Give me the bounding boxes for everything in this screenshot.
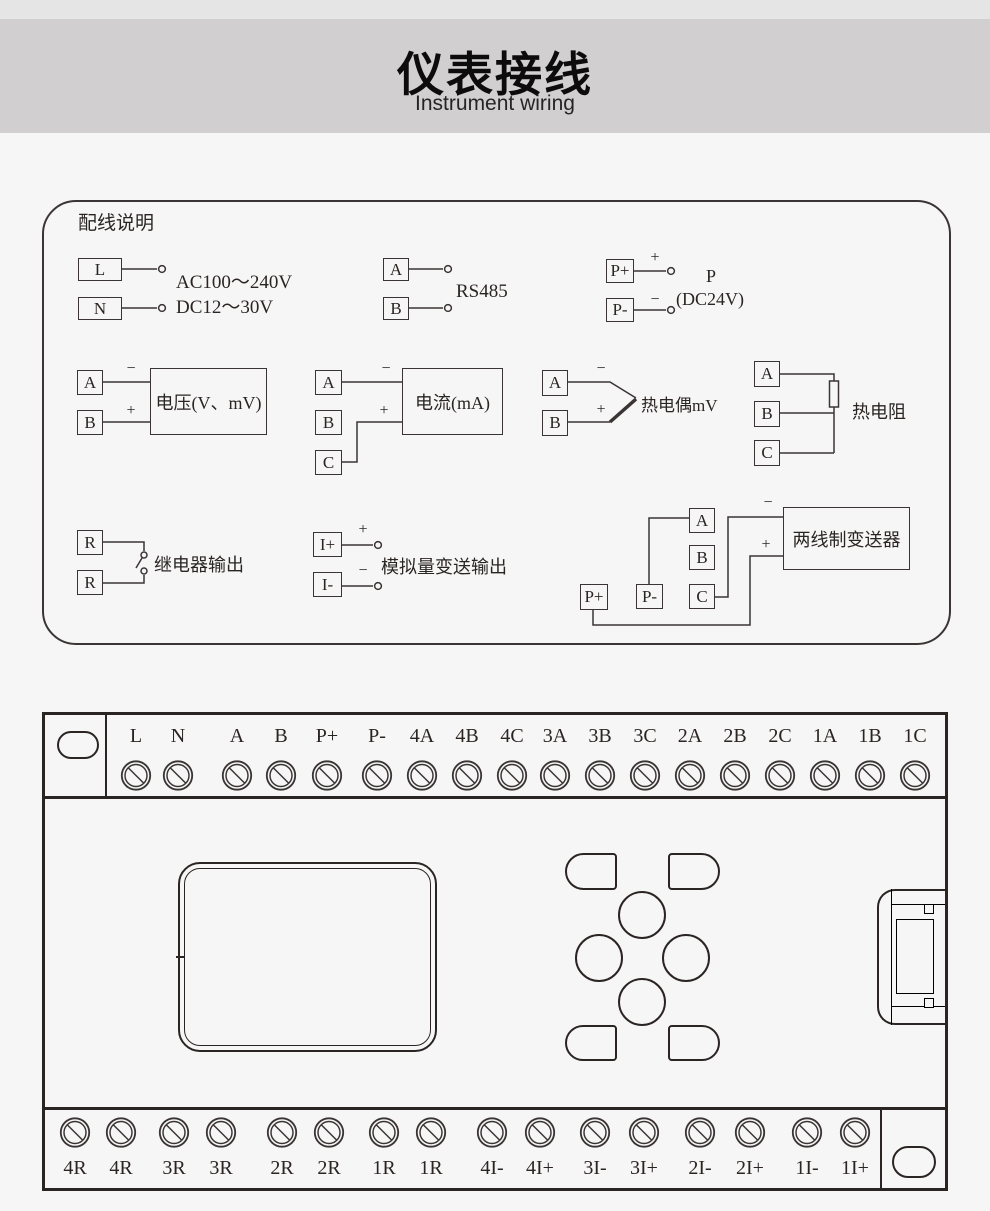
screw-terminal-icon [158,1116,191,1149]
bottom-strip-divider [880,1110,882,1188]
terminal-box-volt-A: A [77,370,103,395]
bottom-terminal-2R-label: 2R [317,1158,340,1178]
screw-terminal-icon [674,759,707,792]
side-connector-tab-bottom [924,998,934,1008]
power-range-ac: AC100～240V [176,267,292,294]
screw-terminal-icon [684,1116,717,1149]
screw-terminal-icon [451,759,484,792]
terminal-box-curr-B: B [315,410,342,435]
bottom-terminal-1I--label: 1I- [795,1158,818,1178]
terminal-box-relay-R2: R [77,570,103,595]
screw-terminal-icon [809,759,842,792]
dc24-volt: (DC24V) [676,289,744,310]
plus-sign: + [761,537,770,553]
screw-terminal-icon [899,759,932,792]
top-terminal-P--screw [361,759,394,797]
terminal-box-tx-C: C [689,584,715,609]
screw-terminal-icon [368,1116,401,1149]
transmitter-box: 两线制变送器 [783,507,910,570]
key-up [618,891,666,939]
rs485-label: RS485 [456,281,508,303]
bottom-terminal-1I+-label: 1I+ [841,1158,869,1178]
side-connector-slot [896,919,934,994]
bottom-terminal-2I--screw [684,1116,717,1154]
screw-terminal-icon [539,759,572,792]
plus-sign: + [379,403,388,419]
screw-terminal-icon [584,759,617,792]
screw-terminal-icon [628,1116,661,1149]
plus-sign: + [596,402,605,418]
top-terminal-1C-label: 1C [903,726,926,746]
bottom-terminal-3R-screw [205,1116,238,1154]
plus-sign: + [650,250,659,266]
terminal-box-Iminus: I- [313,572,342,597]
top-terminal-2C-screw [764,759,797,797]
terminal-box-Iplus: I+ [313,532,342,557]
top-terminal-2B-screw [719,759,752,797]
screw-terminal-icon [266,1116,299,1149]
top-terminal-P+-label: P+ [316,726,338,746]
bottom-terminal-4R-screw [105,1116,138,1154]
terminal-box-rs485-A: A [383,258,409,281]
screw-terminal-icon [311,759,344,792]
rtd-label: 热电阻 [852,398,906,424]
screw-terminal-icon [205,1116,238,1149]
screw-terminal-icon [221,759,254,792]
terminal-box-L: L [78,258,122,281]
key-top-right [668,853,720,890]
top-terminal-L-label: L [130,726,142,746]
screw-terminal-icon [839,1116,872,1149]
terminal-box-Pminus: P- [606,298,634,322]
key-bottom-right [668,1025,720,1061]
terminal-box-relay-R1: R [77,530,103,555]
screw-terminal-icon [415,1116,448,1149]
plus-sign: + [358,522,367,538]
top-terminal-B-screw [265,759,298,797]
top-terminal-3B-label: 3B [588,726,611,746]
screw-terminal-icon [629,759,662,792]
screw-terminal-icon [313,1116,346,1149]
bottom-terminal-4I+-screw [524,1116,557,1154]
screw-terminal-icon [105,1116,138,1149]
display-window-inner [184,868,431,1046]
screw-terminal-icon [496,759,529,792]
screw-terminal-icon [791,1116,824,1149]
top-terminal-B-label: B [274,726,287,746]
top-terminal-P+-screw [311,759,344,797]
bottom-terminal-4R-label: 4R [109,1158,132,1178]
bottom-terminal-4R-screw [59,1116,92,1154]
relay-label: 继电器输出 [154,551,244,577]
terminal-box-volt-B: B [77,410,103,435]
bottom-terminal-2R-screw [313,1116,346,1154]
side-connector-top-line [891,904,945,905]
top-terminal-3B-screw [584,759,617,797]
top-terminal-4C-screw [496,759,529,797]
top-terminal-4A-label: 4A [410,726,434,746]
bottom-terminal-4I--screw [476,1116,509,1154]
top-terminal-P--label: P- [368,726,386,746]
terminal-box-Pplus: P+ [606,259,634,283]
bottom-terminal-3I--label: 3I- [583,1158,606,1178]
bottom-terminal-2R-screw [266,1116,299,1154]
screw-terminal-icon [265,759,298,792]
screw-terminal-icon [406,759,439,792]
top-terminal-4B-screw [451,759,484,797]
bottom-terminal-4I--label: 4I- [480,1158,503,1178]
current-input-box: 电流(mA) [402,368,503,435]
top-terminal-3A-label: 3A [543,726,567,746]
terminal-box-tc-A: A [542,370,568,396]
terminal-box-tc-B: B [542,410,568,436]
terminal-box-curr-A: A [315,370,342,395]
key-left [575,934,623,982]
bottom-terminal-3I+-screw [628,1116,661,1154]
bottom-terminal-2I+-screw [734,1116,767,1154]
screw-terminal-icon [579,1116,612,1149]
top-terminal-1C-screw [899,759,932,797]
screw-terminal-icon [361,759,394,792]
screw-terminal-icon [524,1116,557,1149]
bottom-terminal-3R-label: 3R [209,1158,232,1178]
top-terminal-1A-label: 1A [813,726,837,746]
voltage-input-box: 电压(V、mV) [150,368,267,435]
top-terminal-3C-label: 3C [633,726,656,746]
side-connector-tab-top [924,904,934,914]
top-terminal-A-screw [221,759,254,797]
top-terminal-1B-screw [854,759,887,797]
top-terminal-4A-screw [406,759,439,797]
top-terminal-2B-label: 2B [723,726,746,746]
plus-sign: + [126,403,135,419]
mount-slot-top-left [57,731,99,759]
top-terminal-L-screw [120,759,153,797]
side-connector-line [891,889,892,1025]
bottom-terminal-4R-label: 4R [63,1158,86,1178]
minus-sign: − [763,495,772,511]
thermocouple-label: 热电偶mV [641,391,718,416]
analog-out-label: 模拟量变送输出 [381,553,507,579]
power-range-dc: DC12～30V [176,292,273,319]
header-top-band [0,0,990,19]
minus-sign: − [650,292,659,308]
bottom-terminal-1R-screw [415,1116,448,1154]
bottom-terminal-3R-screw [158,1116,191,1154]
bottom-terminal-4I+-label: 4I+ [526,1158,554,1178]
terminal-box-tx-Pminus: P- [636,584,663,609]
page: 仪表接线 Instrument wiring [0,0,990,1211]
top-terminal-A-label: A [230,726,244,746]
bottom-terminal-1I+-screw [839,1116,872,1154]
terminal-box-rtd-A: A [754,361,780,387]
bottom-terminal-1R-screw [368,1116,401,1154]
top-terminal-2C-label: 2C [768,726,791,746]
wiring-notes-title: 配线说明 [78,208,154,235]
page-subtitle: Instrument wiring [0,92,990,116]
top-terminal-N-screw [162,759,195,797]
bottom-terminal-2I+-label: 2I+ [736,1158,764,1178]
terminal-box-rtd-B: B [754,401,780,427]
terminal-box-tx-Pplus: P+ [580,584,608,610]
bottom-terminal-1R-label: 1R [372,1158,395,1178]
top-terminal-2A-label: 2A [678,726,702,746]
terminal-box-rtd-C: C [754,440,780,466]
top-terminal-4B-label: 4B [455,726,478,746]
bottom-terminal-2I--label: 2I- [688,1158,711,1178]
screw-terminal-icon [59,1116,92,1149]
bottom-strip-top-line [45,1107,945,1110]
terminal-box-curr-C: C [315,450,342,475]
key-right [662,934,710,982]
dc24-name: P [706,266,716,287]
top-terminal-N-label: N [171,726,185,746]
bottom-terminal-1R-label: 1R [419,1158,442,1178]
terminal-box-rs485-B: B [383,297,409,320]
minus-sign: − [126,361,135,377]
screw-terminal-icon [854,759,887,792]
top-terminal-1B-label: 1B [858,726,881,746]
screw-terminal-icon [734,1116,767,1149]
terminal-box-tx-B: B [689,545,715,570]
bottom-terminal-3R-label: 3R [162,1158,185,1178]
bottom-terminal-3I--screw [579,1116,612,1154]
minus-sign: − [381,361,390,377]
top-strip-divider [105,715,107,796]
key-bottom-left [565,1025,617,1061]
terminal-box-tx-A: A [689,508,715,533]
top-terminal-4C-label: 4C [500,726,523,746]
screw-terminal-icon [162,759,195,792]
top-terminal-3C-screw [629,759,662,797]
key-top-left [565,853,617,890]
screw-terminal-icon [764,759,797,792]
bottom-terminal-1I--screw [791,1116,824,1154]
terminal-box-N: N [78,297,122,320]
top-terminal-1A-screw [809,759,842,797]
bottom-terminal-3I+-label: 3I+ [630,1158,658,1178]
top-terminal-2A-screw [674,759,707,797]
side-connector-bottom-line [891,1006,945,1007]
screw-terminal-icon [719,759,752,792]
key-down [618,978,666,1026]
top-terminal-3A-screw [539,759,572,797]
minus-sign: − [358,563,367,579]
screw-terminal-icon [476,1116,509,1149]
display-left-notch [176,956,185,958]
bottom-terminal-2R-label: 2R [270,1158,293,1178]
screw-terminal-icon [120,759,153,792]
mount-slot-bottom-right [892,1146,936,1178]
minus-sign: − [596,361,605,377]
